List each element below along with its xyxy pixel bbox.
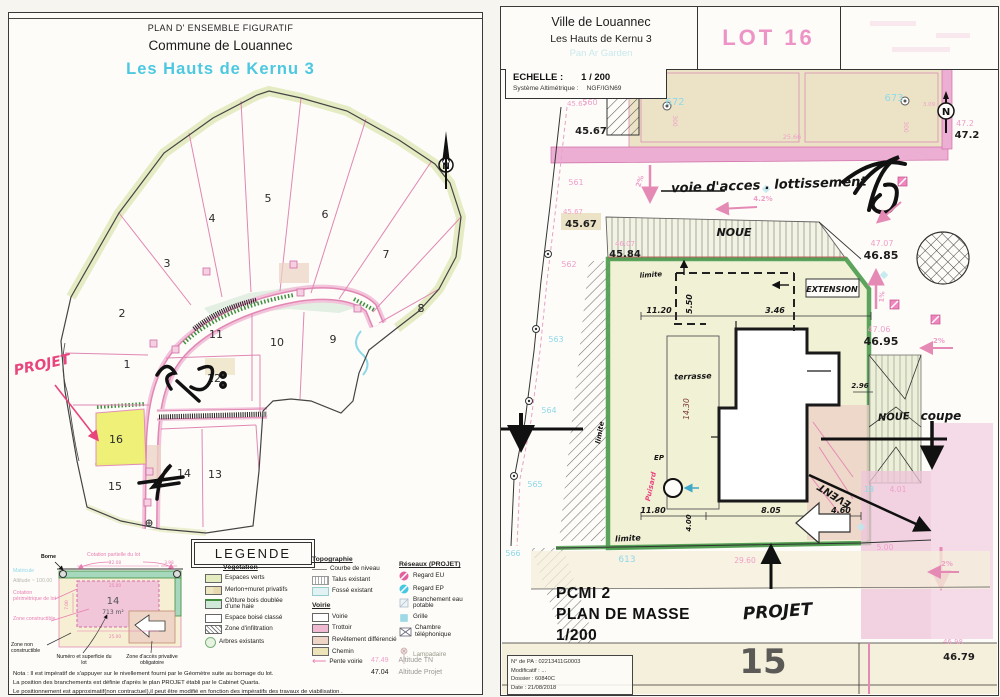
scan-noise: [936, 33, 970, 38]
espace-boise-swatch: [205, 614, 222, 623]
legend-item: Branchement eau potable: [399, 597, 477, 611]
hand-puisard-ep: EP: [654, 454, 665, 462]
tn-47-06: 47.06: [868, 325, 891, 334]
legend-topo-voirie: Topographie Courbe de niveau Talus exist…: [312, 556, 398, 668]
info-date: Date : 21/08/2018: [511, 684, 629, 693]
left-title-block: PLAN D' ENSEMBLE FIGURATIF Commune de Lo…: [49, 23, 392, 79]
numero-superficie-label: Numéro et superficie du lot: [55, 655, 113, 666]
stream-line: [356, 331, 368, 375]
title-cell-lot: LOT 16: [697, 7, 841, 69]
lot-label-15: 15: [108, 480, 122, 493]
lot-label-1: 1: [124, 358, 131, 371]
compass-letter: N: [942, 107, 950, 118]
systeme-value: NGF/IGN69: [587, 85, 622, 92]
legend-vegetation: Végétation Espaces verts Merlon+muret pr…: [205, 564, 309, 650]
pente-voirie-arrow-icon: ⟵: [312, 659, 326, 665]
dim-11-20: 11.20: [646, 306, 672, 315]
merlon-swatch: [205, 586, 222, 595]
parcel-673: 673: [884, 93, 903, 104]
hand-limite-bottom: limite: [615, 533, 642, 543]
dim-2-96: 2.96: [851, 382, 868, 390]
tn-47-2: 47.2: [956, 119, 974, 128]
dim-5-00: 5.00: [877, 543, 894, 552]
legend-title: LEGENDE: [215, 546, 291, 561]
lot-label-5: 5: [265, 192, 272, 205]
nota-block: Nota : Il est impératif de s'appuyer sur…: [13, 670, 375, 697]
voirie-heading: Voirie: [312, 602, 398, 609]
scan-noise: [892, 47, 950, 52]
parcel-672: 672: [665, 97, 684, 108]
lot-label-8: 8: [418, 302, 425, 315]
voirie-swatch: [312, 613, 329, 622]
subdivision-title: Les Hauts de Kernu 3: [505, 33, 697, 45]
chambre-telephonique-icon: [399, 627, 412, 637]
alt-45-84: 45.84: [609, 249, 641, 260]
right-sheet-plan-de-masse: N: [500, 6, 999, 696]
altitude-tn-value: 47.49: [371, 657, 389, 664]
road-loop: [151, 294, 378, 529]
echelle-value: 1 / 200: [581, 72, 610, 83]
legend-example-lot: 14 713 m² 22.08 3.98 25.00 7.00 25.00 Bo…: [11, 553, 203, 673]
nota-line-2: La position des branchements est définie…: [13, 679, 375, 688]
alt-45-67-mid: 45.67: [565, 219, 597, 230]
legend-item: Regard EP: [399, 584, 477, 594]
cotation-partielle-label: Cotation partielle du lot: [87, 553, 163, 559]
legend-item: Revêtement différencié: [312, 636, 398, 645]
legend-item: Fossé existant: [312, 587, 398, 596]
cotation-perimetrique-label: Cotation périmétrique de lot: [13, 591, 57, 602]
lot-label-16: 16: [109, 433, 123, 446]
reseaux-heading: Réseaux (PROJET): [399, 561, 477, 568]
dim-3-46: 3.46: [765, 306, 785, 315]
legend-item: Voirie: [312, 613, 398, 622]
lot-label-4: 4: [209, 212, 216, 225]
hand-limite-top: limite: [639, 270, 662, 280]
legend-item: Zone d'infiltration: [205, 625, 309, 634]
tn-47-07: 47.07: [871, 239, 894, 248]
alt-46-79: 46.79: [943, 652, 975, 663]
nota-line-3: Le positionnement est approximatif(non c…: [13, 688, 375, 697]
regard-ep-icon: [399, 584, 410, 594]
svg-text:22.08: 22.08: [109, 560, 122, 566]
dim-14-30: 14.30: [682, 398, 691, 420]
lot-label-13: 13: [208, 468, 222, 481]
pt-565: 565: [527, 480, 542, 489]
zone-infiltration-swatch: [205, 625, 222, 634]
hand-terrasse: terrasse: [674, 371, 712, 381]
svg-text:25.00: 25.00: [109, 634, 122, 640]
legend-item: Talus existant: [312, 576, 398, 585]
altitude-projet-label: Altitude Projet: [399, 669, 443, 676]
zone-non-constructible-label: Zone non constructible: [11, 643, 63, 654]
dim-25-66: 25.66: [783, 133, 802, 141]
legend-item: Chemin: [312, 647, 398, 656]
legend-item: Chambre téléphonique: [399, 625, 477, 639]
legend-item: Espaces verts: [205, 574, 309, 583]
caption-scale: 1/200: [556, 625, 690, 646]
fosse-swatch: [312, 587, 329, 596]
slope-2c: 2%: [941, 560, 953, 568]
legend-item: Courbe de niveau: [312, 566, 398, 573]
dim-5-50: 5.50: [685, 294, 694, 314]
lot-label-6: 6: [322, 208, 329, 221]
dim-300-a: 300: [671, 115, 678, 127]
dim-8-05: 8.05: [761, 506, 781, 515]
info-dossier: Dossier : 60840C: [511, 675, 629, 684]
altitude-label: Altitude ~ 100.00: [13, 579, 52, 585]
watermark-title: Pan Ar Garden: [505, 48, 697, 59]
left-sheet-plan-ensemble: PLAN D' ENSEMBLE FIGURATIF Commune de Lo…: [8, 12, 483, 695]
survey-marks: [146, 520, 152, 526]
lot-label-2: 2: [119, 307, 126, 320]
scanned-plan-page: PLAN D' ENSEMBLE FIGURATIF Commune de Lo…: [0, 0, 1000, 697]
hand-noue-right: NOUE: [878, 411, 911, 424]
doc-type-title: PLAN D' ENSEMBLE FIGURATIF: [49, 23, 392, 33]
permit-info-box: N° de PA : 02213411G0003 Modificatif : .…: [507, 655, 633, 695]
hand-voie-acces: voie d'acces . lottissement: [671, 175, 868, 197]
legend-title-box: LEGENDE: [194, 542, 312, 565]
revetement-swatch: [312, 636, 329, 645]
slope-1: 1%: [878, 291, 887, 303]
pt-562: 562: [561, 260, 576, 269]
title-cell-left: Ville de Louannec Les Hauts de Kernu 3 P…: [505, 7, 698, 69]
grille-icon: [399, 613, 410, 623]
lot-label-9: 9: [330, 333, 337, 346]
hand-projet: PROJET: [742, 600, 814, 625]
chambre-telephonique-circle: [917, 232, 969, 284]
dim-29-60: 29.60: [734, 556, 756, 565]
matricule-label: Matricule: [13, 569, 34, 575]
hand-noue-top: NOUE: [716, 226, 751, 239]
pt-613: 613: [618, 555, 635, 565]
hand-extension: EXTENSION: [806, 285, 858, 294]
zone-constructible-label: Zone constructible: [13, 617, 57, 623]
courbe-swatch: [312, 569, 327, 570]
talus-swatch: [312, 576, 329, 585]
topographie-heading: Topographie: [312, 556, 398, 563]
pt-566: 566: [505, 549, 520, 558]
zone-acces-label: Zone d'accès privative obligatoire: [119, 655, 185, 666]
tn-46-07: 46.07: [615, 240, 635, 248]
plan-caption: PCMI 2 PLAN DE MASSE 1/200: [556, 583, 690, 646]
vegetation-heading: Végétation: [223, 564, 309, 571]
svg-text:25.00: 25.00: [109, 583, 122, 589]
slope-4-2: 4.2%: [753, 195, 772, 203]
legend-item: Arbres existants: [205, 637, 309, 648]
pt-563: 563: [548, 335, 563, 344]
dim-4-00: 4.00: [685, 514, 693, 531]
lot-label-3: 3: [164, 257, 171, 270]
legend-item: Clôture bois doublée d'une haie: [205, 598, 309, 612]
commune-title: Commune de Louannec: [49, 38, 392, 53]
dim-3-09: 3.09: [923, 102, 936, 108]
title-cell-right: [840, 7, 998, 69]
scale-box: ECHELLE :1 / 200 Système Altimétrique :N…: [505, 69, 667, 99]
chemin-swatch: [312, 647, 329, 656]
lot-label-10: 10: [270, 336, 284, 349]
legend-item: Grille: [399, 613, 477, 623]
trottoir-swatch: [312, 624, 329, 633]
lotissement-title: Les Hauts de Kernu 3: [49, 60, 392, 79]
svg-text:3.98: 3.98: [164, 560, 174, 566]
dim-11-80: 11.80: [640, 506, 666, 515]
north-letter: N: [442, 162, 450, 172]
regard-eu-icon: [399, 571, 410, 581]
pt-18: 18: [864, 485, 874, 494]
slope-2a: 2%: [634, 174, 645, 188]
alt-47-2: 47.2: [955, 130, 980, 141]
altitude-tn-label: Altitude TN: [399, 657, 434, 664]
hand-coupe: coupe: [921, 409, 962, 423]
legend-item: Espace boisé classé: [205, 614, 309, 623]
dim-300-b: 300: [902, 121, 909, 133]
echelle-label: ECHELLE :: [513, 72, 563, 83]
projet-annotation: PROJET: [13, 351, 97, 439]
dim-4-01: 4.01: [890, 485, 907, 494]
caption-pcmi: PCMI 2: [556, 583, 690, 604]
caption-plan-de-masse: PLAN DE MASSE: [556, 604, 690, 625]
svg-text:7.00: 7.00: [64, 600, 70, 610]
pt-561: 561: [568, 178, 583, 187]
slope-2b: 2%: [933, 337, 945, 345]
info-modificatif: Modificatif : ...: [511, 667, 629, 676]
legend-item: Trottoir: [312, 624, 398, 633]
borne-label: Borne: [41, 555, 56, 561]
cloture-swatch: [205, 599, 222, 609]
alt-46-85: 46.85: [864, 249, 899, 262]
espaces-verts-swatch: [205, 574, 222, 583]
lot-stamp: LOT 16: [697, 25, 840, 51]
tn-45-67-top: 45.67: [567, 100, 587, 108]
lot-label-7: 7: [383, 248, 390, 261]
pt-564: 564: [541, 406, 556, 415]
legend-item: Merlon+muret privatifs: [205, 586, 309, 595]
arbres-icon: [205, 637, 216, 648]
altitude-tn-row: 47.49Altitude TN: [371, 657, 433, 664]
alt-46-95: 46.95: [864, 335, 899, 348]
tn-45-67-mid: 45.67: [563, 208, 583, 216]
scan-noise: [870, 21, 916, 26]
right-title-block: Ville de Louannec Les Hauts de Kernu 3 P…: [501, 7, 998, 70]
nota-line-1: Nota : Il est impératif de s'appuyer sur…: [13, 670, 375, 679]
tn-46-98: 46.98: [943, 638, 963, 646]
example-lot-number: 14: [107, 596, 120, 607]
info-pa: N° de PA : 02213411G0003: [511, 658, 629, 667]
legend-reseaux: Réseaux (PROJET) Regard EU Regard EP Bra…: [399, 561, 477, 667]
alt-45-67-top: 45.67: [575, 126, 607, 137]
legend-item: Regard EU: [399, 571, 477, 581]
example-lot-area: 713 m²: [102, 609, 124, 616]
systeme-label: Système Altimétrique :: [513, 85, 579, 92]
city-title: Ville de Louannec: [505, 15, 697, 29]
neighbor-lot-number: 15: [739, 642, 786, 682]
branchement-icon: [399, 598, 410, 608]
lot-label-11: 11: [209, 328, 223, 341]
altitude-projet-row: 47.04Altitude Projet: [371, 669, 442, 676]
